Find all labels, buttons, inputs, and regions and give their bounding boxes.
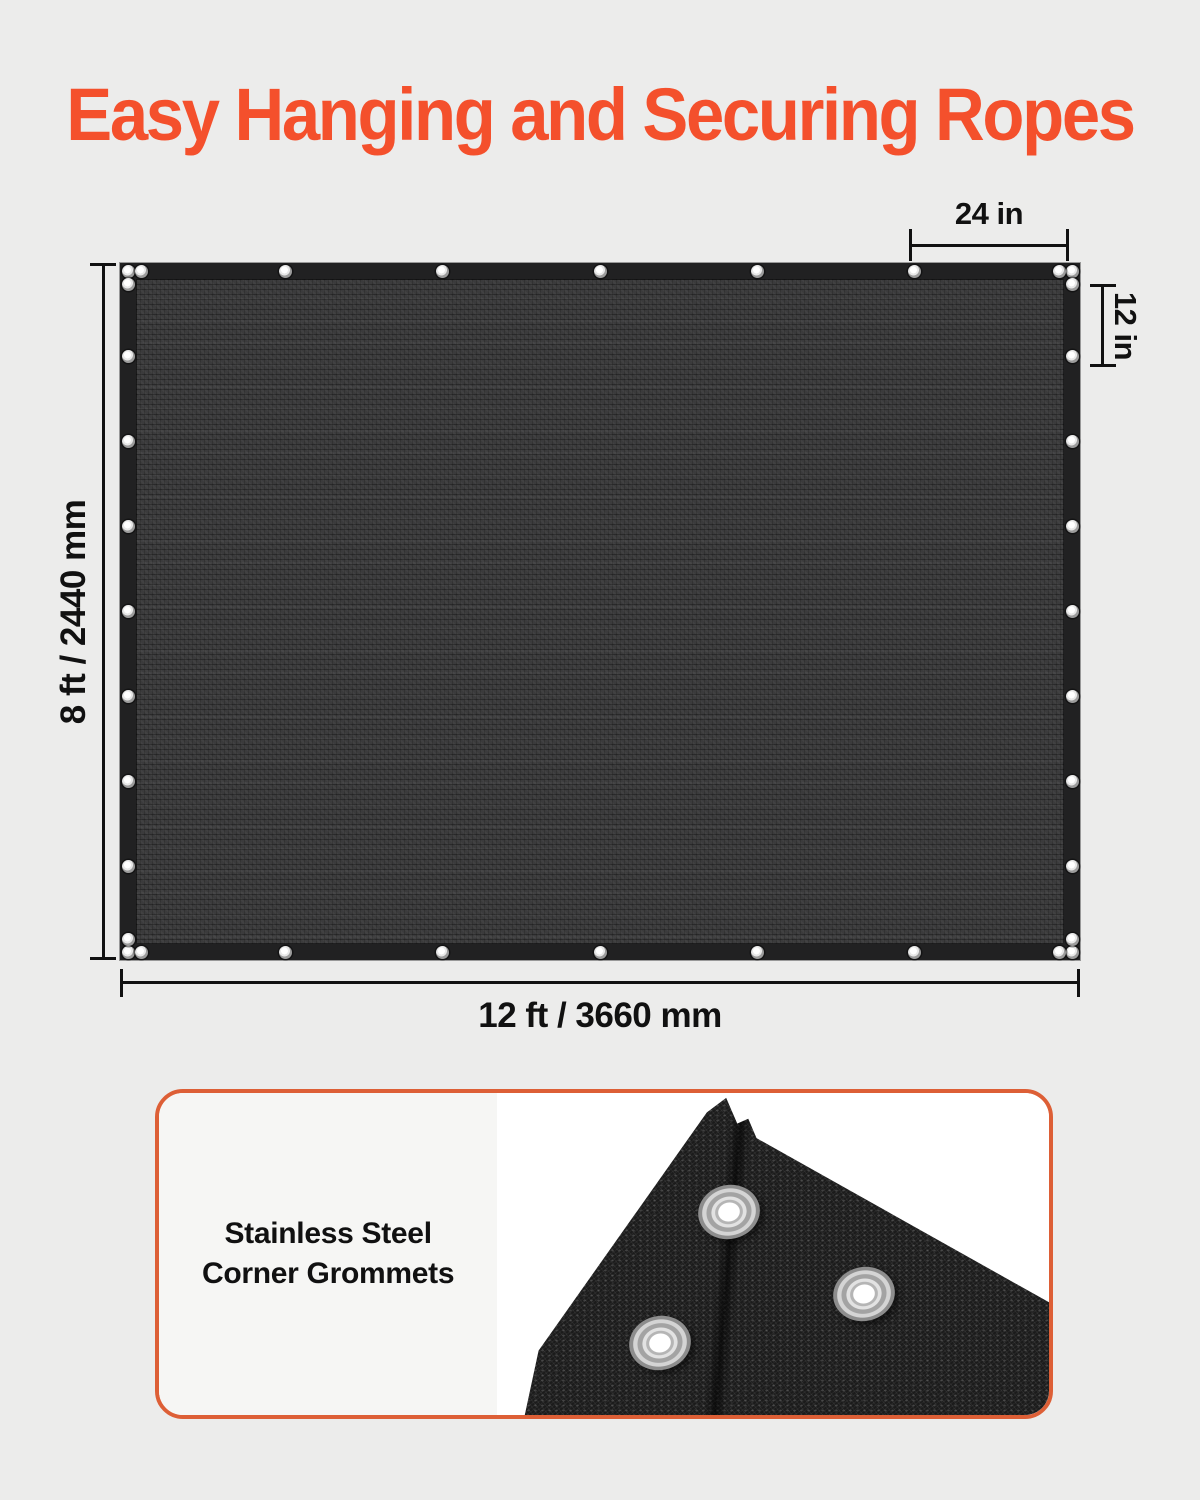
grommet-icon [122, 775, 135, 788]
grommet-icon [122, 278, 135, 291]
grommet-icon [908, 265, 921, 278]
product-infographic: Easy Hanging and Securing Ropes 24 in 12… [0, 0, 1200, 1500]
dimension-tick [1090, 284, 1116, 287]
grommet-icon [135, 946, 148, 959]
feature-card-line2: Corner Grommets [202, 1254, 454, 1294]
grommet-icon [908, 946, 921, 959]
dimension-line [909, 244, 1069, 247]
dimension-line [120, 981, 1080, 984]
shade-cloth-hem [120, 263, 1080, 960]
grommet-icon [1053, 946, 1066, 959]
dimension-tick [90, 957, 116, 960]
grommet-icon [279, 265, 292, 278]
grommet-icon [122, 690, 135, 703]
grommet-icon [751, 946, 764, 959]
fabric-corner [497, 1093, 1049, 1415]
dimension-tick [90, 263, 116, 266]
grommet-icon [1066, 278, 1079, 291]
shade-cloth [120, 263, 1080, 960]
grommet-icon [122, 265, 135, 278]
grommet-icon [122, 605, 135, 618]
dimension-height-label: 8 ft / 2440 mm [54, 392, 94, 832]
grommet-icon [122, 860, 135, 873]
grommet-icon [594, 946, 607, 959]
grommet-icon [1066, 520, 1079, 533]
grommet-icon [1053, 265, 1066, 278]
grommet-icon [122, 435, 135, 448]
grommet-icon [751, 265, 764, 278]
grommet-icon [594, 265, 607, 278]
dimension-tick [909, 229, 912, 261]
grommet-photo [497, 1093, 1049, 1415]
grommet-icon [1066, 946, 1079, 959]
dimension-line [102, 263, 105, 960]
fabric-seam [704, 1093, 754, 1415]
dimension-tick [1066, 229, 1069, 261]
feature-card-text: Stainless Steel Corner Grommets [159, 1093, 497, 1415]
grommet-icon [1066, 775, 1079, 788]
page-title: Easy Hanging and Securing Ropes [42, 72, 1158, 157]
dimension-tick [1077, 969, 1080, 997]
grommet-icon [1066, 933, 1079, 946]
dimension-width-label: 12 ft / 3660 mm [120, 996, 1080, 1036]
grommet-icon [122, 350, 135, 363]
dimension-line [1101, 284, 1104, 367]
grommet-icon [1066, 265, 1079, 278]
grommet-icon [122, 933, 135, 946]
grommet-icon [1066, 435, 1079, 448]
dimension-right-spacing-label: 12 in [1108, 256, 1142, 396]
dimension-tick [1090, 364, 1116, 367]
feature-card-line1: Stainless Steel [224, 1214, 431, 1254]
dimension-tick [120, 969, 123, 997]
grommet-icon [1066, 690, 1079, 703]
grommet-icon [135, 265, 148, 278]
grommet-icon [1066, 605, 1079, 618]
dimension-top-spacing-label: 24 in [909, 196, 1069, 232]
grommet-icon [279, 946, 292, 959]
grommet-icon [122, 946, 135, 959]
grommet-icon [436, 946, 449, 959]
feature-card: Stainless Steel Corner Grommets [155, 1089, 1053, 1419]
grommet-icon [1066, 860, 1079, 873]
grommet-icon [436, 265, 449, 278]
grommet-icon [1066, 350, 1079, 363]
grommet-icon [122, 520, 135, 533]
